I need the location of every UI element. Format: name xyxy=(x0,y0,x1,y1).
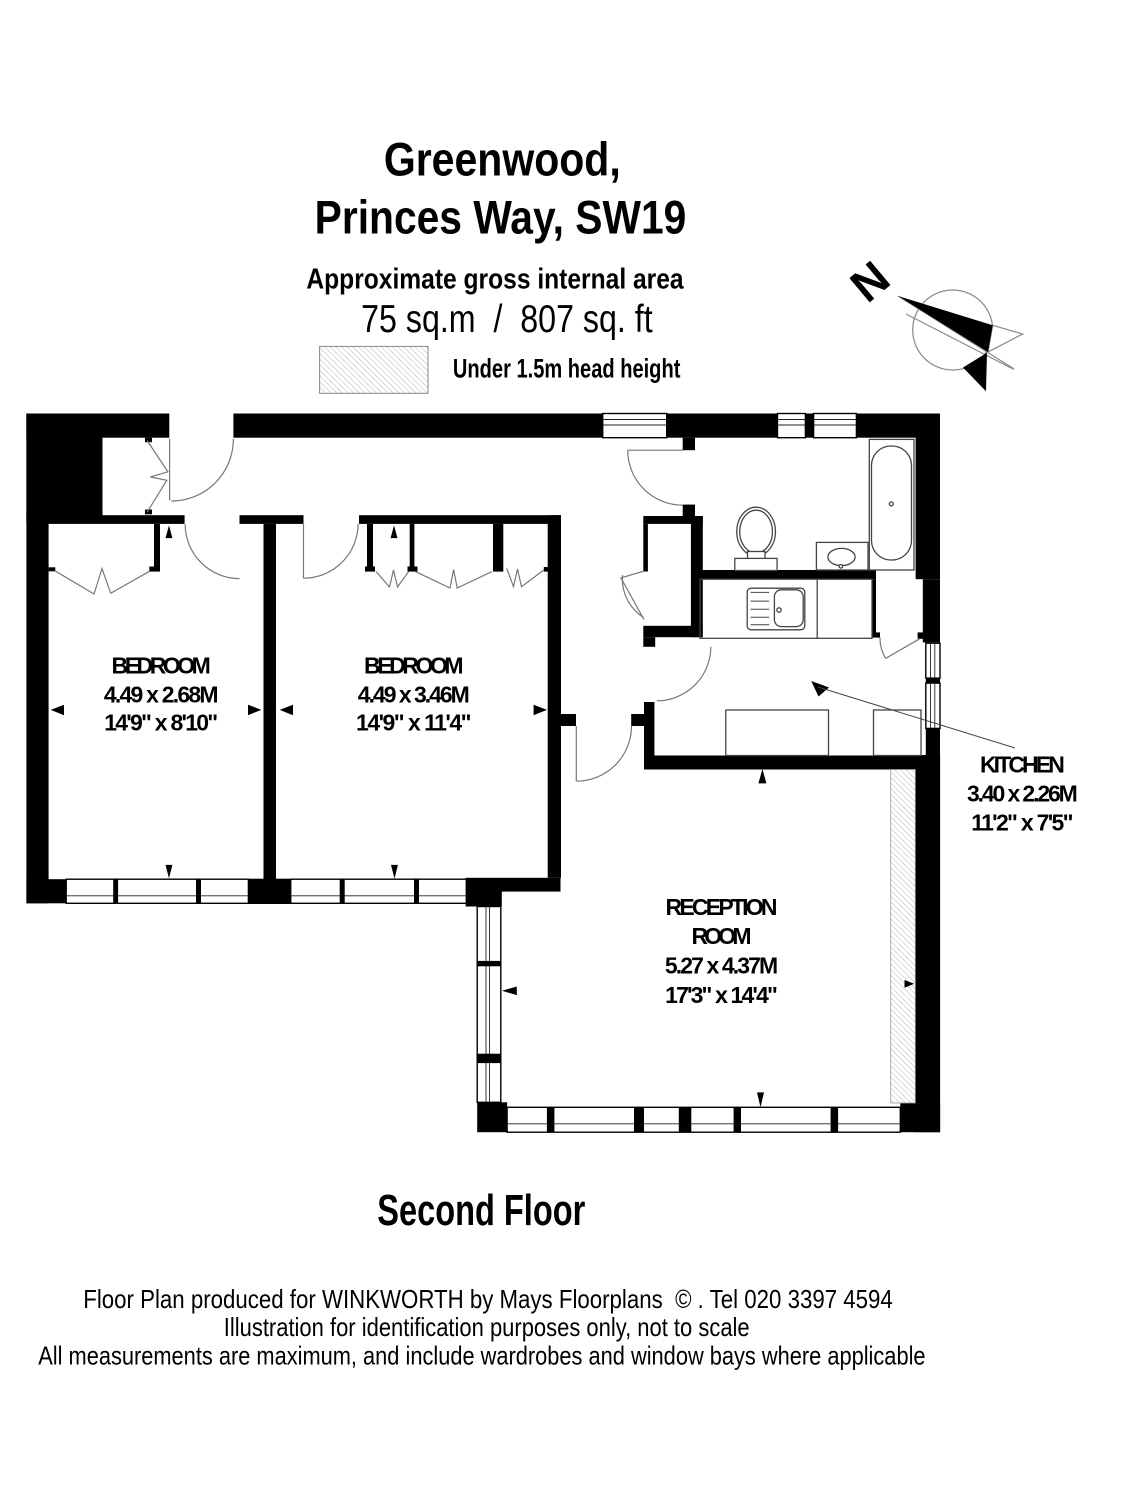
svg-text:Princes Way, SW19: Princes Way, SW19 xyxy=(315,191,687,244)
svg-text:3.40 x 2.26M: 3.40 x 2.26M xyxy=(967,781,1078,807)
svg-text:4.49 x 2.68M: 4.49 x 2.68M xyxy=(104,682,219,708)
svg-text:RECEPTION: RECEPTION xyxy=(666,894,778,920)
svg-text:Approximate gross internal are: Approximate gross internal area xyxy=(306,264,684,296)
svg-text:75 sq.m / 807 sq. ft: 75 sq.m / 807 sq. ft xyxy=(361,298,653,341)
svg-text:5.27 x 4.37M: 5.27 x 4.37M xyxy=(665,953,778,979)
svg-text:ROOM: ROOM xyxy=(692,923,752,949)
svg-text:All measurements are maximum,: All measurements are maximum, and includ… xyxy=(38,1341,925,1371)
svg-text:14'9" x 8'10": 14'9" x 8'10" xyxy=(104,710,218,736)
svg-text:Second Floor: Second Floor xyxy=(377,1186,585,1235)
svg-text:14'9" x 11'4": 14'9" x 11'4" xyxy=(356,710,472,736)
svg-text:KITCHEN: KITCHEN xyxy=(980,752,1065,778)
svg-text:BEDROOM: BEDROOM xyxy=(112,652,211,678)
svg-text:BEDROOM: BEDROOM xyxy=(364,652,464,678)
svg-text:Greenwood,: Greenwood, xyxy=(384,134,621,187)
svg-text:11'2" x 7'5": 11'2" x 7'5" xyxy=(971,810,1073,836)
svg-text:Under 1.5m head height: Under 1.5m head height xyxy=(453,353,681,383)
svg-text:Floor Plan produced for WINKWO: Floor Plan produced for WINKWORTH by May… xyxy=(83,1284,893,1314)
svg-text:4.49 x 3.46M: 4.49 x 3.46M xyxy=(358,682,470,708)
svg-text:17'3" x 14'4": 17'3" x 14'4" xyxy=(665,982,778,1008)
svg-text:Illustration for identificatio: Illustration for identification purposes… xyxy=(224,1312,750,1342)
